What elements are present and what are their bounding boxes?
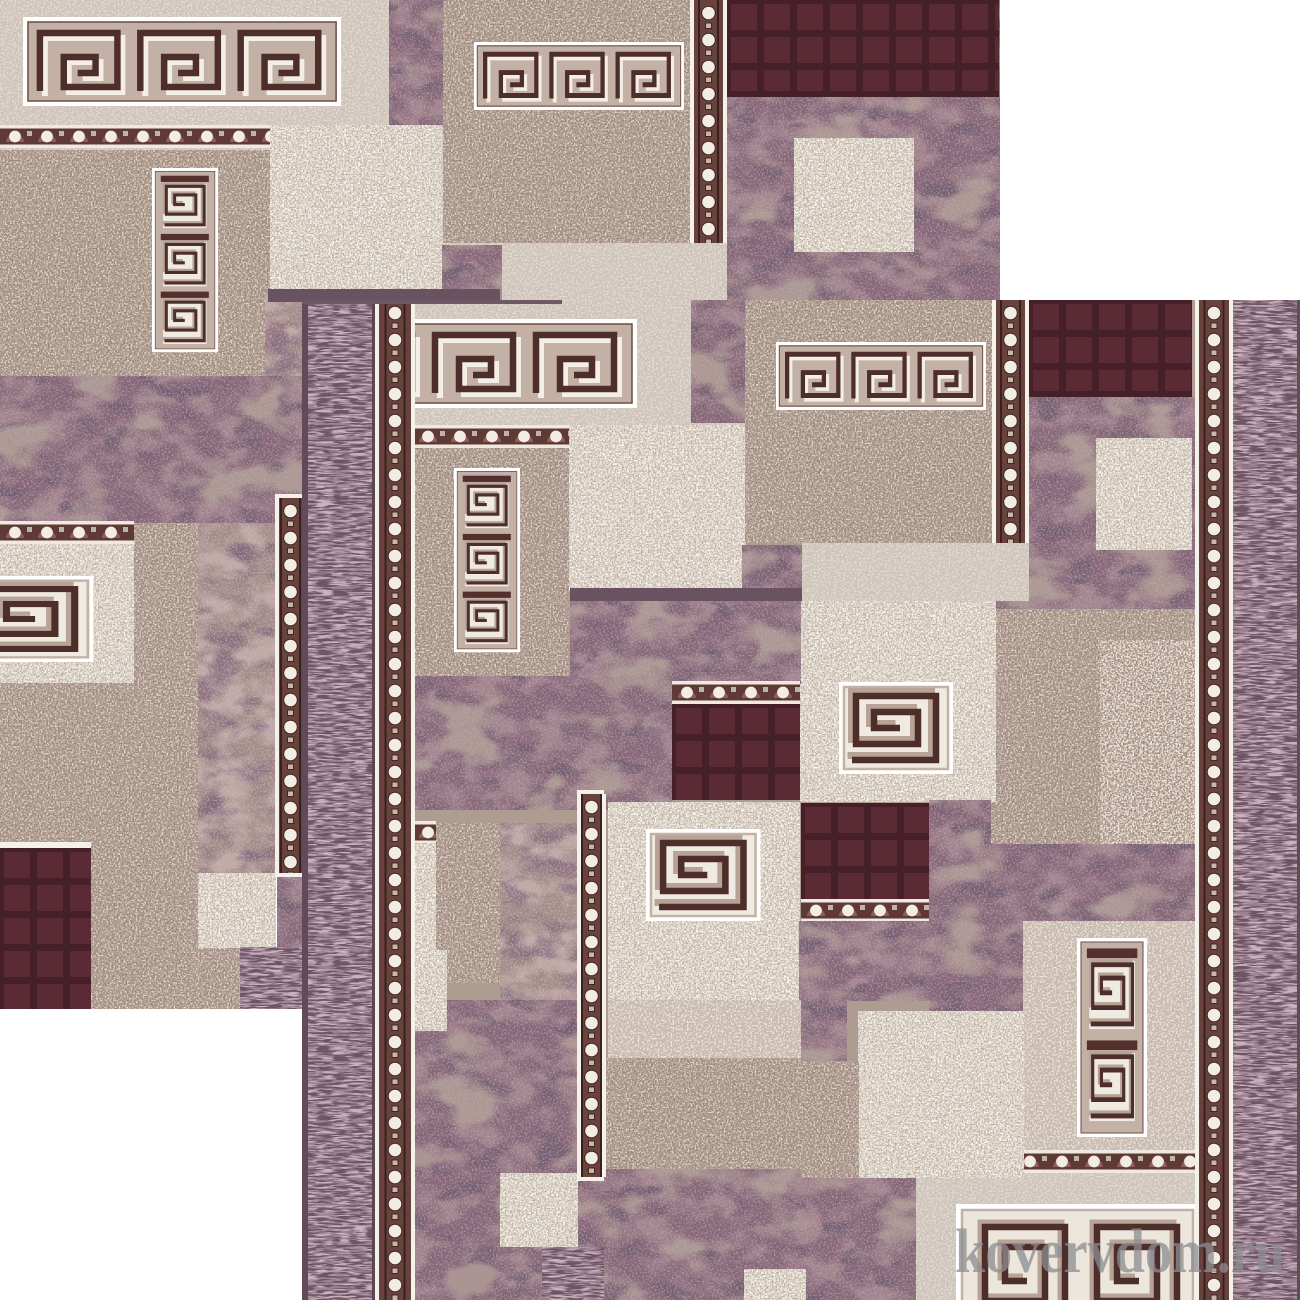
svg-text:kovervdom.ru: kovervdom.ru (955, 1218, 1285, 1286)
